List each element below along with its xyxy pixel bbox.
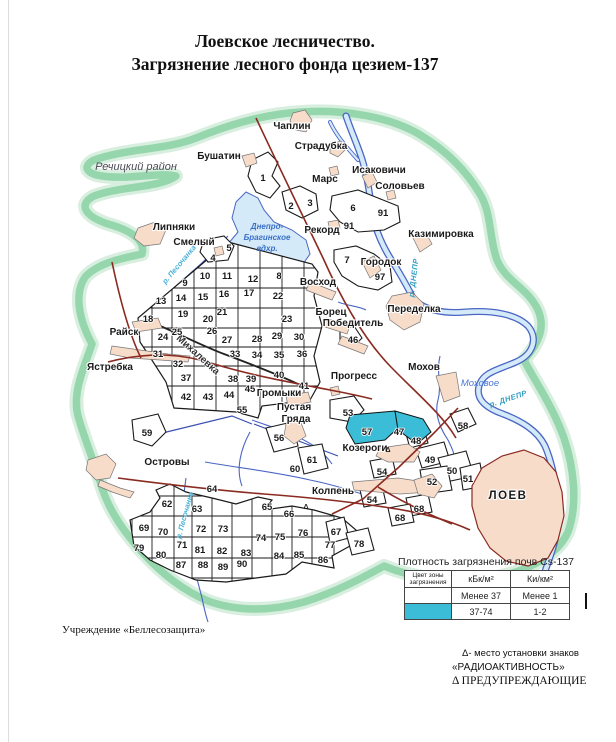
- quarter-q50: 50: [447, 466, 458, 477]
- quarter-q38: 38: [228, 374, 239, 385]
- legend-kbk-value: 37-74: [452, 604, 511, 620]
- page: Лоевское лесничество. Загрязнение лесног…: [0, 0, 616, 742]
- quarter-q97: 97: [375, 272, 386, 283]
- quarter-q42: 42: [181, 392, 192, 403]
- quarter-q40: 40: [274, 370, 285, 381]
- quarter-q86: 86: [318, 555, 329, 566]
- label-progress: Прогресс: [331, 371, 378, 382]
- label-rechitsky-rayon: Речицкий район: [95, 161, 177, 173]
- quarter-q7: 7: [344, 255, 349, 266]
- quarter-q29: 29: [272, 331, 283, 342]
- label-yastrebka: Ястребка: [87, 361, 133, 373]
- quarter-q1: 1: [260, 173, 266, 184]
- quarter-q43: 43: [203, 392, 214, 403]
- quarter-q67: 67: [331, 527, 342, 538]
- label-pustaya: Пустая: [277, 402, 312, 413]
- legend-col-ki: Ки/км²: [511, 571, 570, 588]
- quarter-q4: 4: [210, 253, 216, 264]
- quarter-q24: 24: [158, 332, 169, 343]
- quarter-q85: 85: [294, 550, 305, 561]
- quarter-q33: 33: [230, 349, 241, 360]
- quarter-q48: 48: [411, 436, 422, 447]
- quarter-q44: 44: [224, 390, 235, 401]
- legend-color-swatch: [405, 604, 452, 620]
- quarter-q78: 78: [354, 539, 365, 550]
- quarter-q5: 5: [226, 243, 232, 254]
- label-mars: Марс: [312, 174, 338, 185]
- quarter-q18: 18: [143, 314, 154, 325]
- quarter-q91b: 91: [344, 221, 355, 232]
- label-kazimirovka: Казимировка: [408, 229, 474, 240]
- quarter-q13: 13: [156, 296, 167, 307]
- quarter-q8: 8: [276, 271, 281, 282]
- legend-ki-value: Менее 1: [511, 588, 570, 604]
- label-pobeditel: Победитель: [323, 317, 384, 329]
- label-gromyki: Громыки: [257, 388, 301, 399]
- quarter-q91a: 91: [378, 208, 389, 219]
- quarter-q87: 87: [176, 560, 187, 571]
- quarter-q71: 71: [177, 540, 188, 551]
- footer-warning-note: Δ- место установки знаков «РАДИОАКТИВНОС…: [452, 648, 602, 687]
- quarter-q68a: 68: [414, 504, 425, 515]
- warning-sign-mark: Δ: [303, 504, 308, 511]
- legend-color-swatch: [405, 588, 452, 604]
- quarter-q65: 65: [262, 502, 273, 513]
- quarter-q35: 35: [274, 350, 285, 361]
- quarter-q79: 79: [134, 543, 145, 554]
- quarter-q73: 73: [218, 524, 229, 535]
- quarter-q21: 21: [217, 307, 228, 318]
- label-ostrovy: Островы: [144, 457, 189, 468]
- quarter-q75: 75: [275, 532, 286, 543]
- quarter-q54b: 54: [367, 495, 378, 506]
- label-rekord: Рекорд: [304, 225, 340, 236]
- quarter-q27: 27: [222, 335, 233, 346]
- warning-sign-mark: Δ: [385, 447, 390, 454]
- label-peredelka: Переделка: [387, 304, 441, 315]
- quarter-q20: 20: [203, 314, 214, 325]
- quarter-q64: 64: [207, 484, 218, 495]
- label-raysk: Райск: [110, 327, 140, 338]
- quarter-q89: 89: [218, 562, 229, 573]
- footer-organization: Учреждение «Беллесозащита»: [62, 624, 205, 636]
- quarter-q53: 53: [343, 408, 354, 419]
- quarter-q16: 16: [219, 289, 230, 300]
- quarter-q47: 47: [394, 427, 405, 438]
- quarter-q31: 31: [153, 349, 164, 360]
- quarter-q6: 6: [350, 203, 355, 214]
- quarter-q82: 82: [217, 546, 228, 557]
- quarter-q68b: 68: [395, 513, 406, 524]
- quarter-q2: 2: [288, 201, 293, 212]
- label-gryada: Гряда: [281, 414, 310, 425]
- quarter-q80: 80: [156, 550, 167, 561]
- quarter-q62: 62: [162, 499, 173, 510]
- label-mokhov: Мохов: [408, 362, 440, 373]
- quarter-q14: 14: [176, 293, 187, 304]
- label-reservoir-3: вдхр.: [256, 244, 277, 253]
- label-chaplin: Чаплин: [273, 121, 310, 132]
- legend-header-row: Цвет зоны загрязнения кБк/м² Ки/км²: [405, 571, 570, 588]
- quarter-q70: 70: [158, 527, 169, 538]
- quarter-q57: 57: [362, 427, 373, 438]
- legend-ki-value: 1-2: [511, 604, 570, 620]
- legend-row: Менее 37Менее 1: [405, 588, 570, 604]
- quarter-q45: 45: [245, 384, 256, 395]
- label-mokhovoe: Моховое: [461, 378, 499, 389]
- quarter-q63: 63: [192, 504, 203, 515]
- label-loev: ЛОЕВ: [489, 490, 528, 502]
- quarter-q72: 72: [196, 524, 207, 535]
- quarter-q28: 28: [252, 334, 263, 345]
- quarter-q30: 30: [294, 332, 305, 343]
- quarter-q90: 90: [237, 559, 248, 570]
- quarter-q19: 19: [178, 309, 189, 320]
- quarter-q17: 17: [244, 288, 255, 299]
- quarter-q12: 12: [248, 274, 259, 285]
- legend-title: Плотность загрязнения почв Cs-137: [398, 556, 584, 568]
- quarter-q15: 15: [198, 292, 209, 303]
- quarter-q55: 55: [237, 405, 248, 416]
- label-reservoir-2: Брагинское: [244, 233, 291, 242]
- label-borets: Борец: [315, 307, 347, 318]
- label-solovyev: Соловьев: [375, 181, 424, 192]
- quarter-q56: 56: [274, 433, 285, 444]
- quarter-q84: 84: [274, 551, 285, 562]
- quarter-q81: 81: [195, 545, 206, 556]
- quarter-q66: 66: [284, 509, 295, 520]
- quarter-q60: 60: [290, 464, 301, 475]
- label-kolpen: Колпень: [312, 486, 354, 497]
- legend-col-zone: Цвет зоны загрязнения: [405, 571, 452, 588]
- quarter-q58: 58: [458, 421, 469, 432]
- quarter-q22: 22: [273, 291, 284, 302]
- quarter-q11: 11: [222, 271, 233, 282]
- warning-note-line1: Δ- место установки знаков: [452, 648, 602, 659]
- quarter-q54a: 54: [377, 467, 388, 478]
- quarter-q32: 32: [173, 359, 184, 370]
- warning-note-line3: Δ ПРЕДУПРЕЖДАЮЩИЕ: [452, 675, 602, 687]
- quarter-q49: 49: [425, 455, 436, 466]
- quarter-q34: 34: [252, 350, 263, 361]
- quarter-q36: 36: [297, 349, 308, 360]
- quarter-q74: 74: [256, 533, 267, 544]
- quarter-q23: 23: [282, 314, 293, 325]
- label-isakovichi: Исаковичи: [352, 165, 406, 176]
- label-dnepr-lower: р. ДНЕПР: [487, 388, 528, 409]
- quarter-q61: 61: [307, 455, 318, 466]
- label-kozerogi: Козероги: [342, 443, 387, 454]
- quarter-q9: 9: [182, 278, 187, 289]
- quarter-q25: 25: [172, 327, 183, 338]
- quarter-q76: 76: [298, 528, 309, 539]
- label-reservoir-1: Днепро-: [250, 222, 284, 231]
- label-dnepr-upper: р. ДНЕПР: [407, 257, 421, 298]
- quarter-q51: 51: [463, 474, 474, 485]
- label-gorodok: Городок: [361, 257, 403, 268]
- legend-table: Цвет зоны загрязнения кБк/м² Ки/км² Мене…: [404, 570, 570, 620]
- quarter-q46: 46: [348, 335, 359, 346]
- quarter-q37: 37: [181, 373, 192, 384]
- warning-note-line2: «РАДИОАКТИВНОСТЬ»: [452, 662, 602, 673]
- legend-row: 37-741-2: [405, 604, 570, 620]
- quarter-q10: 10: [200, 271, 211, 282]
- label-voskhod: Восход: [300, 277, 337, 288]
- quarter-q69: 69: [139, 523, 150, 534]
- quarter-q59: 59: [142, 428, 153, 439]
- quarter-q83: 83: [241, 548, 252, 559]
- quarter-q88: 88: [198, 560, 209, 571]
- label-stradubka: Страдубка: [295, 140, 348, 152]
- quarter-q3: 3: [307, 198, 312, 209]
- legend: Плотность загрязнения почв Cs-137 Цвет з…: [396, 556, 584, 620]
- loev-town-area: [472, 450, 564, 566]
- label-bushatin: Бушатин: [197, 151, 241, 162]
- stray-tick-mark: [585, 593, 587, 609]
- quarter-q77: 77: [325, 540, 336, 551]
- quarter-q52: 52: [427, 477, 438, 488]
- legend-col-kbk: кБк/м²: [452, 571, 511, 588]
- legend-kbk-value: Менее 37: [452, 588, 511, 604]
- quarter-q26: 26: [207, 326, 218, 337]
- quarter-q41: 41: [299, 381, 310, 392]
- label-lipnyaki: Липняки: [153, 222, 195, 233]
